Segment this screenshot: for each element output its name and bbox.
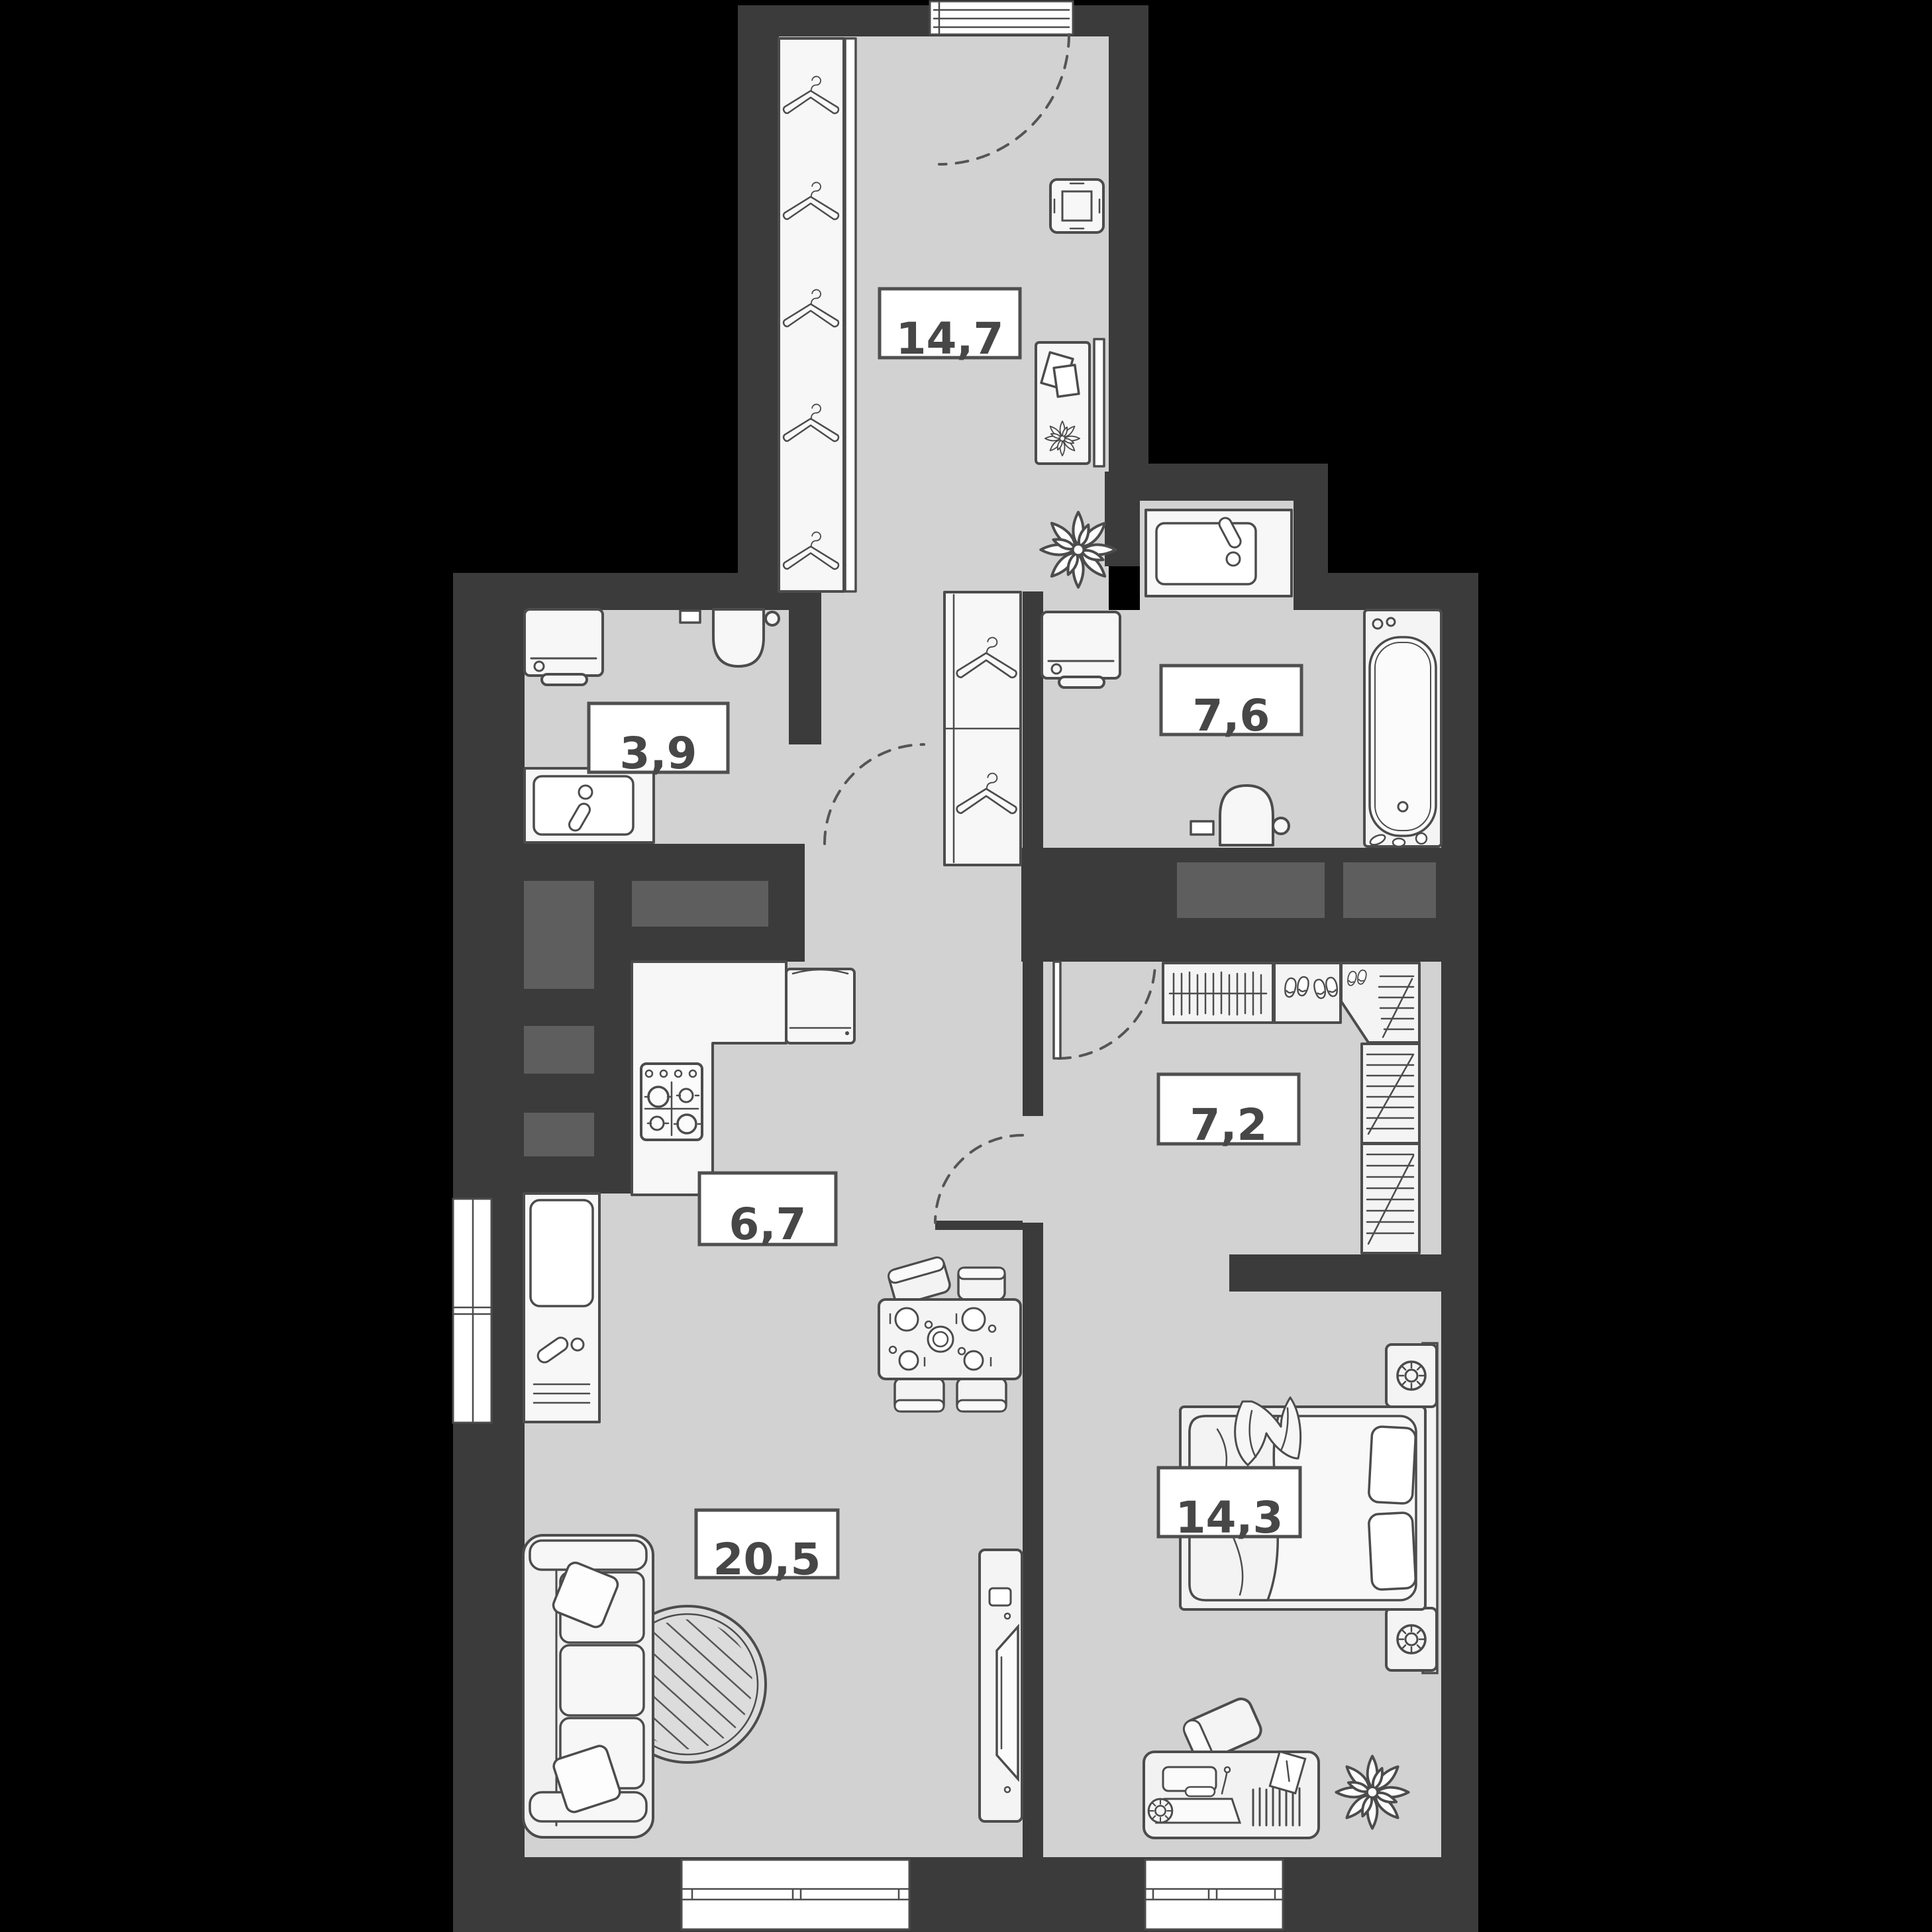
console-table — [1036, 342, 1090, 464]
desk-lamp-icon — [1148, 1799, 1172, 1823]
mirror — [1094, 339, 1104, 466]
desk — [1144, 1752, 1319, 1838]
door-gap-floor — [1023, 1116, 1043, 1223]
kitchen-sink — [524, 1194, 599, 1422]
toilet-icon — [713, 609, 764, 666]
room-label-bedroom: 14,3 — [1158, 1468, 1300, 1543]
bath-sink — [1146, 510, 1292, 596]
toilet-flush-button — [1191, 821, 1213, 835]
pillow — [1368, 1512, 1416, 1590]
entry-door — [930, 1, 1073, 34]
room-label-wardrobe: 7,2 — [1158, 1074, 1299, 1150]
room-area-text: 20,5 — [713, 1534, 821, 1585]
pillow — [1368, 1426, 1416, 1503]
wc-sink — [525, 768, 654, 842]
dining-chair — [895, 1378, 944, 1411]
plant-icon — [1336, 1756, 1408, 1828]
floor-plan: 14,7 3,9 7,6 6,7 7,2 20,5 14,3 — [0, 0, 1932, 1932]
window-kitchen — [453, 1199, 491, 1423]
wardrobe-shelf-unit — [1362, 1044, 1419, 1143]
hallway-wardrobe — [779, 38, 856, 591]
sofa — [523, 1535, 653, 1837]
toilet-flush-button — [680, 611, 700, 623]
room-area-text: 7,2 — [1190, 1099, 1268, 1150]
wardrobe-rail-unit — [1163, 963, 1273, 1023]
toilet-icon — [1220, 786, 1273, 845]
room-label-wc: 3,9 — [589, 703, 728, 779]
room-label-hallway: 14,7 — [880, 289, 1020, 364]
toilet-roll-icon — [1273, 818, 1289, 834]
bath-washing-machine — [1042, 612, 1120, 687]
electrical-panel-icon — [1050, 179, 1103, 232]
window-bedroom — [1145, 1860, 1283, 1929]
wardrobe-door-leaf — [1054, 962, 1060, 1058]
room-area-text: 3,9 — [620, 728, 697, 779]
room-area-text: 14,3 — [1176, 1492, 1284, 1543]
tv-icon — [997, 1627, 1018, 1779]
room-area-text: 14,7 — [896, 313, 1004, 364]
room-label-kitchen: 6,7 — [699, 1173, 836, 1250]
room-area-text: 6,7 — [729, 1199, 807, 1250]
dining-chair — [958, 1268, 1005, 1299]
stove — [641, 1064, 702, 1140]
lamp-icon — [1398, 1625, 1425, 1653]
tv-unit — [980, 1550, 1022, 1821]
window-living — [682, 1860, 909, 1929]
wardrobe-shelf-unit — [1362, 1144, 1419, 1253]
hall-closet — [944, 592, 1021, 865]
room-label-living: 20,5 — [696, 1510, 838, 1585]
fridge — [786, 969, 854, 1043]
room-label-bathroom: 7,6 — [1161, 666, 1301, 741]
wc-washing-machine — [525, 609, 603, 685]
plant-icon — [1045, 421, 1080, 456]
bathtub — [1364, 610, 1441, 847]
dining-chair — [957, 1378, 1006, 1411]
room-area-text: 7,6 — [1193, 690, 1270, 741]
toilet-roll-icon — [766, 612, 779, 625]
lamp-icon — [1398, 1362, 1425, 1390]
wardrobe-shoe-shelf — [1274, 963, 1341, 1023]
plant-icon — [1041, 512, 1115, 587]
